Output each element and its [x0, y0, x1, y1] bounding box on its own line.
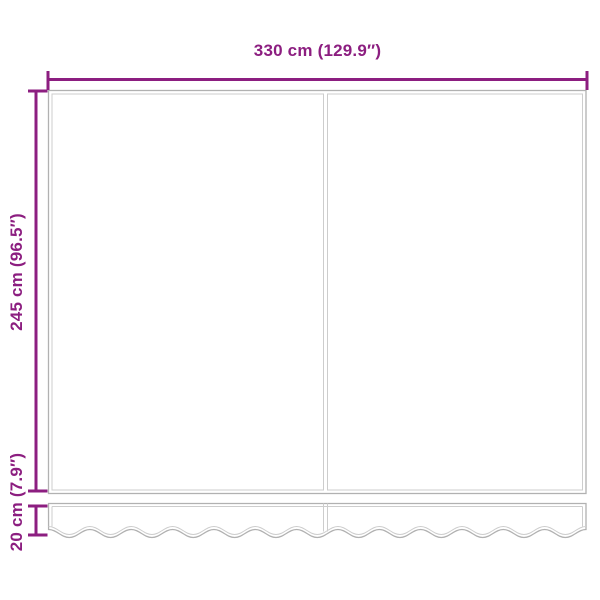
awning-fabric — [49, 91, 587, 494]
valance-height-dimension — [28, 506, 48, 536]
fabric-outline — [49, 91, 587, 494]
valance-height-dimension-label: 20 cm (7.9″) — [7, 453, 27, 551]
diagram-drawing — [0, 0, 600, 600]
width-dimension-label: 330 cm (129.9″) — [48, 41, 587, 61]
valance-outline — [49, 504, 587, 538]
awning-fabric-dimension-diagram: 330 cm (129.9″) 245 cm (96.5″) 20 cm (7.… — [0, 0, 600, 600]
width-dimension — [48, 71, 587, 90]
valance — [49, 504, 587, 538]
height-dimension-label: 245 cm (96.5″) — [7, 213, 27, 331]
height-dimension — [28, 90, 48, 493]
